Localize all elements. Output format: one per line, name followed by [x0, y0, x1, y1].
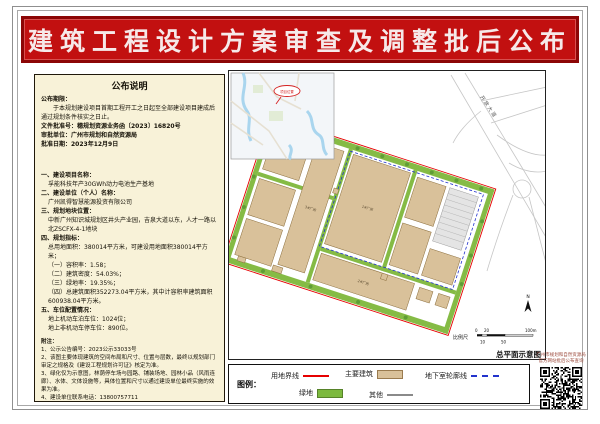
scale-bar: 比例尺 0 20 100m 10 50 [453, 328, 537, 345]
qr-code [540, 367, 582, 409]
site-plan-drawing: 开放大道 [229, 71, 546, 360]
svg-text:比例尺: 比例尺 [453, 334, 468, 341]
note-item: 2、该图主要体现建筑的空间布局和尺寸、位置与层数，最终以规划部门审定之规格及《建… [41, 355, 218, 371]
legend-item-basement-outline: 地下室轮廓线 [425, 371, 499, 381]
north-arrow: N [525, 294, 532, 312]
approver: 审批单位：广州市规划和自然资源局 [41, 131, 218, 140]
legend-item-main-building: 主要建筑 [345, 369, 403, 379]
location-inset-map: 项目位置 [231, 73, 334, 159]
spacer [41, 149, 218, 171]
legend-box: 图例： 用地界线 主要建筑 地下室轮廓线 绿地 其他 [228, 364, 530, 404]
period-text: 于本规划建设项目首期工程开工之日起至全部建设项目建成后通过规划条件核实之日止。 [41, 104, 218, 122]
section-project-name: 一、建设项目名称： 孚能科技年产30GWh动力电池生产基地 [41, 171, 218, 189]
period-label: 公布期限： [41, 95, 218, 104]
notice-panel: 公布说明 公布期限： 于本规划建设项目首期工程开工之日起至全部建设项目建成后通过… [34, 74, 225, 402]
legend-title: 图例： [237, 379, 261, 390]
legend-item-site-boundary: 用地界线 [271, 371, 329, 381]
green-fill-swatch [317, 389, 343, 398]
gray-line-swatch [387, 394, 413, 396]
svg-text:N: N [526, 294, 529, 300]
qr-caption-line2: 官方网站批后公布查询 [533, 359, 589, 365]
tan-fill-swatch [377, 370, 403, 379]
qr-block: 广州市规划和自然资源局 官方网站批后公布查询 [533, 353, 589, 413]
project-location-label: 项目位置 [280, 89, 294, 94]
svg-text:20: 20 [484, 328, 490, 333]
title-banner: 建筑工程设计方案审查及调整批后公布 [21, 16, 579, 63]
note-item: 4、建设单位联系电话：13800757711 [41, 395, 218, 402]
legend-item-other: 其他 [369, 390, 413, 400]
legend-item-green-space: 绿地 [299, 388, 343, 398]
page-title: 建筑工程设计方案审查及调整批后公布 [28, 22, 572, 58]
svg-text:50: 50 [501, 340, 507, 345]
notes-label: 附注： [41, 339, 218, 347]
svg-text:10: 10 [480, 340, 486, 345]
notice-title: 公布说明 [41, 79, 218, 92]
svg-text:0: 0 [475, 328, 478, 333]
section-parking: 五、车位配置情况： 地上机动车泊车位：1024位； 地上非机动车停车位：890位… [41, 306, 218, 333]
approve-date: 批准日期：2023年12月9日 [41, 140, 218, 149]
note-item: 1、公示公告编号：2023公示33033号 [41, 347, 218, 355]
notes-block: 附注： 1、公示公告编号：2023公示33033号 2、该图主要体现建筑的空间布… [41, 339, 218, 402]
section-plan-indicators: 四、规划指标： 总用地面积：380014平方米，可建设用地面积380014平方米… [41, 234, 218, 306]
poster-page: 建筑工程设计方案审查及调整批后公布 公布说明 公布期限： 于本规划建设项目首期工… [0, 0, 600, 424]
blue-dashed-swatch [471, 375, 499, 377]
note-item: 3、绿化仅为示意图，林荫停车场与园路、铺装场地、园林小品（风雨连廊）、水体、文体… [41, 371, 218, 395]
section-owner-name: 二、建设单位（个人）名称： 广州凯得智慧能源投资有限公司 [41, 189, 218, 207]
red-line-swatch [303, 375, 329, 377]
doc-number: 文件批准号：穗规划资源业务函〔2023〕16820号 [41, 122, 218, 131]
site-plan-sheet: 开放大道 [228, 70, 546, 360]
section-plot-location: 三、规划地块位置： 中新广州知识城规划区井头产业园，吉泉大道以东，人才一路以北Z… [41, 207, 218, 234]
svg-text:100m: 100m [525, 328, 537, 333]
